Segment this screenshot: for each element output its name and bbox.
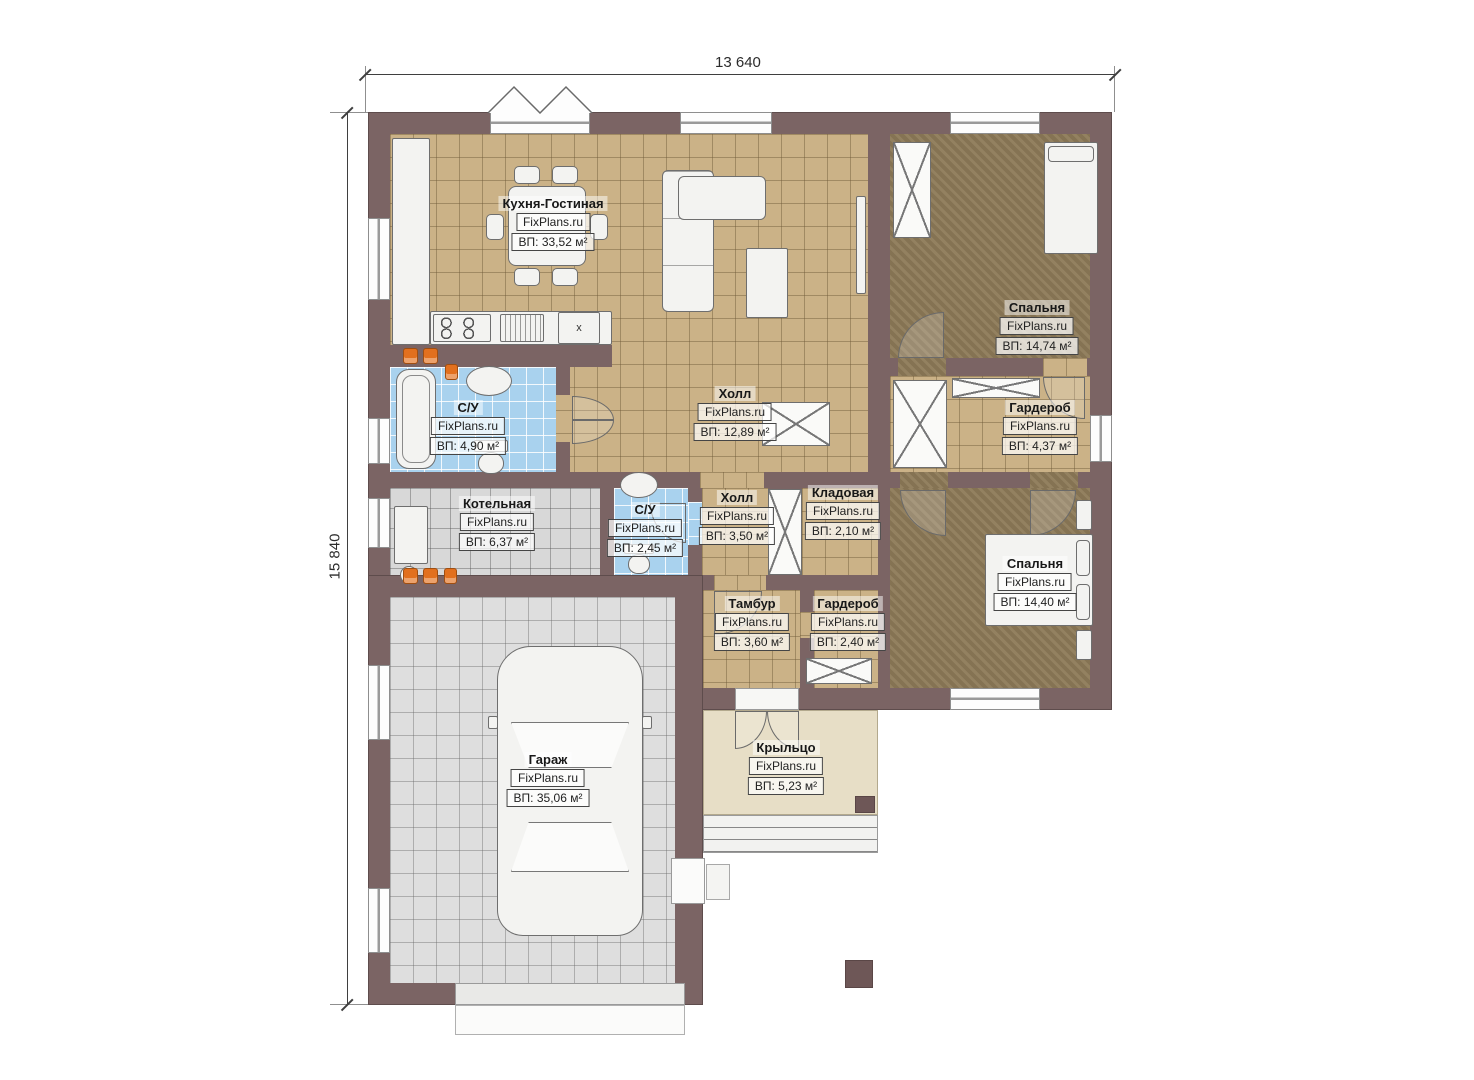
brand-tag: FixPlans.ru (511, 769, 585, 787)
room-area: ВП: 12,89 м² (694, 423, 777, 441)
dimension-height: 15 840 (326, 534, 343, 580)
bedroom1-wardrobe (893, 142, 931, 238)
window (368, 665, 390, 740)
room-label-hall-2: Холл FixPlans.ru ВП: 3,50 м² (699, 490, 775, 545)
brand-tag: FixPlans.ru (608, 519, 682, 537)
room-name: Гардероб (1005, 400, 1074, 415)
room-label-porch: Крыльцо FixPlans.ru ВП: 5,23 м² (748, 740, 824, 795)
opening-bedroom1-door (898, 358, 946, 376)
stove (433, 314, 491, 342)
brand-tag: FixPlans.ru (516, 213, 590, 231)
bedroom2-pillow (1076, 540, 1090, 576)
room-label-wardrobe-1: Гардероб FixPlans.ru ВП: 4,37 м² (1002, 400, 1078, 455)
bathroom1-sink (466, 366, 512, 396)
room-label-bathroom-1: С/У FixPlans.ru ВП: 4,90 м² (430, 400, 506, 455)
car-rear-window (511, 822, 629, 872)
wall-bath1-right (556, 367, 570, 395)
brand-tag: FixPlans.ru (715, 613, 789, 631)
window (950, 112, 1040, 134)
opening-bedroom2-door-left (900, 472, 948, 488)
window (368, 498, 390, 548)
room-name: Гардероб (813, 596, 882, 611)
dimension-width: 13 640 (715, 54, 761, 71)
floor-plan: 13 640 15 840 (0, 0, 1474, 1080)
tv-stand (856, 196, 866, 294)
brand-tag: FixPlans.ru (811, 613, 885, 631)
brand-tag: FixPlans.ru (698, 403, 772, 421)
dining-chair (552, 166, 578, 184)
room-area: ВП: 4,90 м² (430, 437, 506, 455)
room-area: ВП: 3,60 м² (714, 633, 790, 651)
radiator (445, 364, 458, 380)
extension-line (330, 112, 368, 113)
porch-steps (703, 815, 878, 853)
room-label-bathroom-2: С/У FixPlans.ru ВП: 2,45 м² (607, 502, 683, 557)
brand-tag: FixPlans.ru (1003, 417, 1077, 435)
porch-post (855, 796, 875, 813)
fridge: x (558, 312, 600, 344)
room-area: ВП: 33,52 м² (512, 233, 595, 251)
window (490, 112, 590, 134)
room-label-wardrobe-2: Гардероб FixPlans.ru ВП: 2,40 м² (810, 596, 886, 651)
room-area: ВП: 14,74 м² (996, 337, 1079, 355)
wardrobe1-closet-top (952, 378, 1040, 398)
car-mirror (642, 716, 652, 729)
radiator (403, 568, 418, 584)
room-area: ВП: 6,37 м² (459, 533, 535, 551)
wardrobe1-closet-tall (893, 380, 947, 468)
room-name: С/У (630, 502, 659, 517)
room-label-storage: Кладовая FixPlans.ru ВП: 2,10 м² (805, 485, 881, 540)
radiator (423, 568, 438, 584)
opening-wardrobe1-door (1043, 358, 1087, 376)
room-name: Спальня (1005, 300, 1069, 315)
bedroom2-shelf (1076, 630, 1092, 660)
opening-vestibule-door (714, 575, 766, 590)
room-name: Крыльцо (752, 740, 819, 755)
garage-door-opening (455, 983, 685, 1005)
dining-chair (514, 166, 540, 184)
brand-tag: FixPlans.ru (998, 573, 1072, 591)
room-area: ВП: 3,50 м² (699, 527, 775, 545)
room-label-kitchen-living: Кухня-Гостиная FixPlans.ru ВП: 33,52 м² (498, 196, 607, 251)
dining-chair (552, 268, 578, 286)
bedroom2-pillow (1076, 584, 1090, 620)
window (368, 418, 390, 464)
bathroom2-sink (620, 472, 658, 498)
brand-tag: FixPlans.ru (431, 417, 505, 435)
window (950, 688, 1040, 710)
garage-door-apron (455, 1005, 685, 1035)
room-name: Тамбур (724, 596, 779, 611)
opening-bedroom2-door-right (1030, 472, 1078, 488)
room-label-boiler-room: Котельная FixPlans.ru ВП: 6,37 м² (459, 496, 535, 551)
room-name: Холл (715, 386, 756, 401)
fridge-label: x (576, 322, 582, 334)
dimension-line-left (347, 112, 348, 1004)
garage-side-door (671, 858, 705, 904)
room-label-bedroom-1: Спальня FixPlans.ru ВП: 14,74 м² (996, 300, 1079, 355)
room-area: ВП: 4,37 м² (1002, 437, 1078, 455)
room-name: С/У (453, 400, 482, 415)
bathtub-inner (402, 375, 430, 463)
gable-canopy (486, 84, 594, 114)
radiator (423, 348, 438, 364)
brand-tag: FixPlans.ru (749, 757, 823, 775)
brand-tag: FixPlans.ru (460, 513, 534, 531)
front-door-opening (735, 688, 799, 710)
kitchen-tall-cabinet (392, 138, 430, 345)
kitchen-sink (500, 314, 544, 342)
car-mirror (488, 716, 498, 729)
room-area: ВП: 14,40 м² (994, 593, 1077, 611)
bedroom1-pillow (1048, 146, 1094, 162)
room-name: Гараж (525, 752, 572, 767)
window (368, 218, 390, 300)
room-area: ВП: 2,10 м² (805, 522, 881, 540)
bedroom2-shelf (1076, 500, 1092, 530)
brand-tag: FixPlans.ru (700, 507, 774, 525)
sofa-back (678, 176, 766, 220)
room-name: Спальня (1003, 556, 1067, 571)
coffee-table (746, 248, 788, 318)
room-name: Котельная (459, 496, 535, 511)
opening-hall2 (700, 472, 764, 488)
brand-tag: FixPlans.ru (1000, 317, 1074, 335)
room-label-hall-main: Холл FixPlans.ru ВП: 12,89 м² (694, 386, 777, 441)
dining-chair (514, 268, 540, 286)
room-name: Холл (717, 490, 758, 505)
room-name: Кладовая (808, 485, 878, 500)
room-area: ВП: 2,45 м² (607, 539, 683, 557)
dimension-line-top (365, 74, 1115, 75)
wall-bath1-right (556, 442, 570, 472)
room-label-garage: Гараж FixPlans.ru ВП: 35,06 м² (507, 752, 590, 807)
toilet-bowl (628, 554, 650, 574)
radiator (403, 348, 418, 364)
garage-side-step (706, 864, 730, 900)
room-area: ВП: 5,23 м² (748, 777, 824, 795)
room-area: ВП: 2,40 м² (810, 633, 886, 651)
extension-line (330, 1004, 368, 1005)
brand-tag: FixPlans.ru (806, 502, 880, 520)
room-label-bedroom-2: Спальня FixPlans.ru ВП: 14,40 м² (994, 556, 1077, 611)
window (1090, 415, 1112, 462)
radiator (444, 568, 457, 584)
boiler-unit (394, 506, 428, 564)
site-post (845, 960, 873, 988)
wardrobe2-closet (806, 658, 872, 684)
window (368, 888, 390, 953)
room-area: ВП: 35,06 м² (507, 789, 590, 807)
window (680, 112, 772, 134)
room-name: Кухня-Гостиная (498, 196, 607, 211)
room-label-vestibule: Тамбур FixPlans.ru ВП: 3,60 м² (714, 596, 790, 651)
toilet-bowl (478, 452, 504, 474)
